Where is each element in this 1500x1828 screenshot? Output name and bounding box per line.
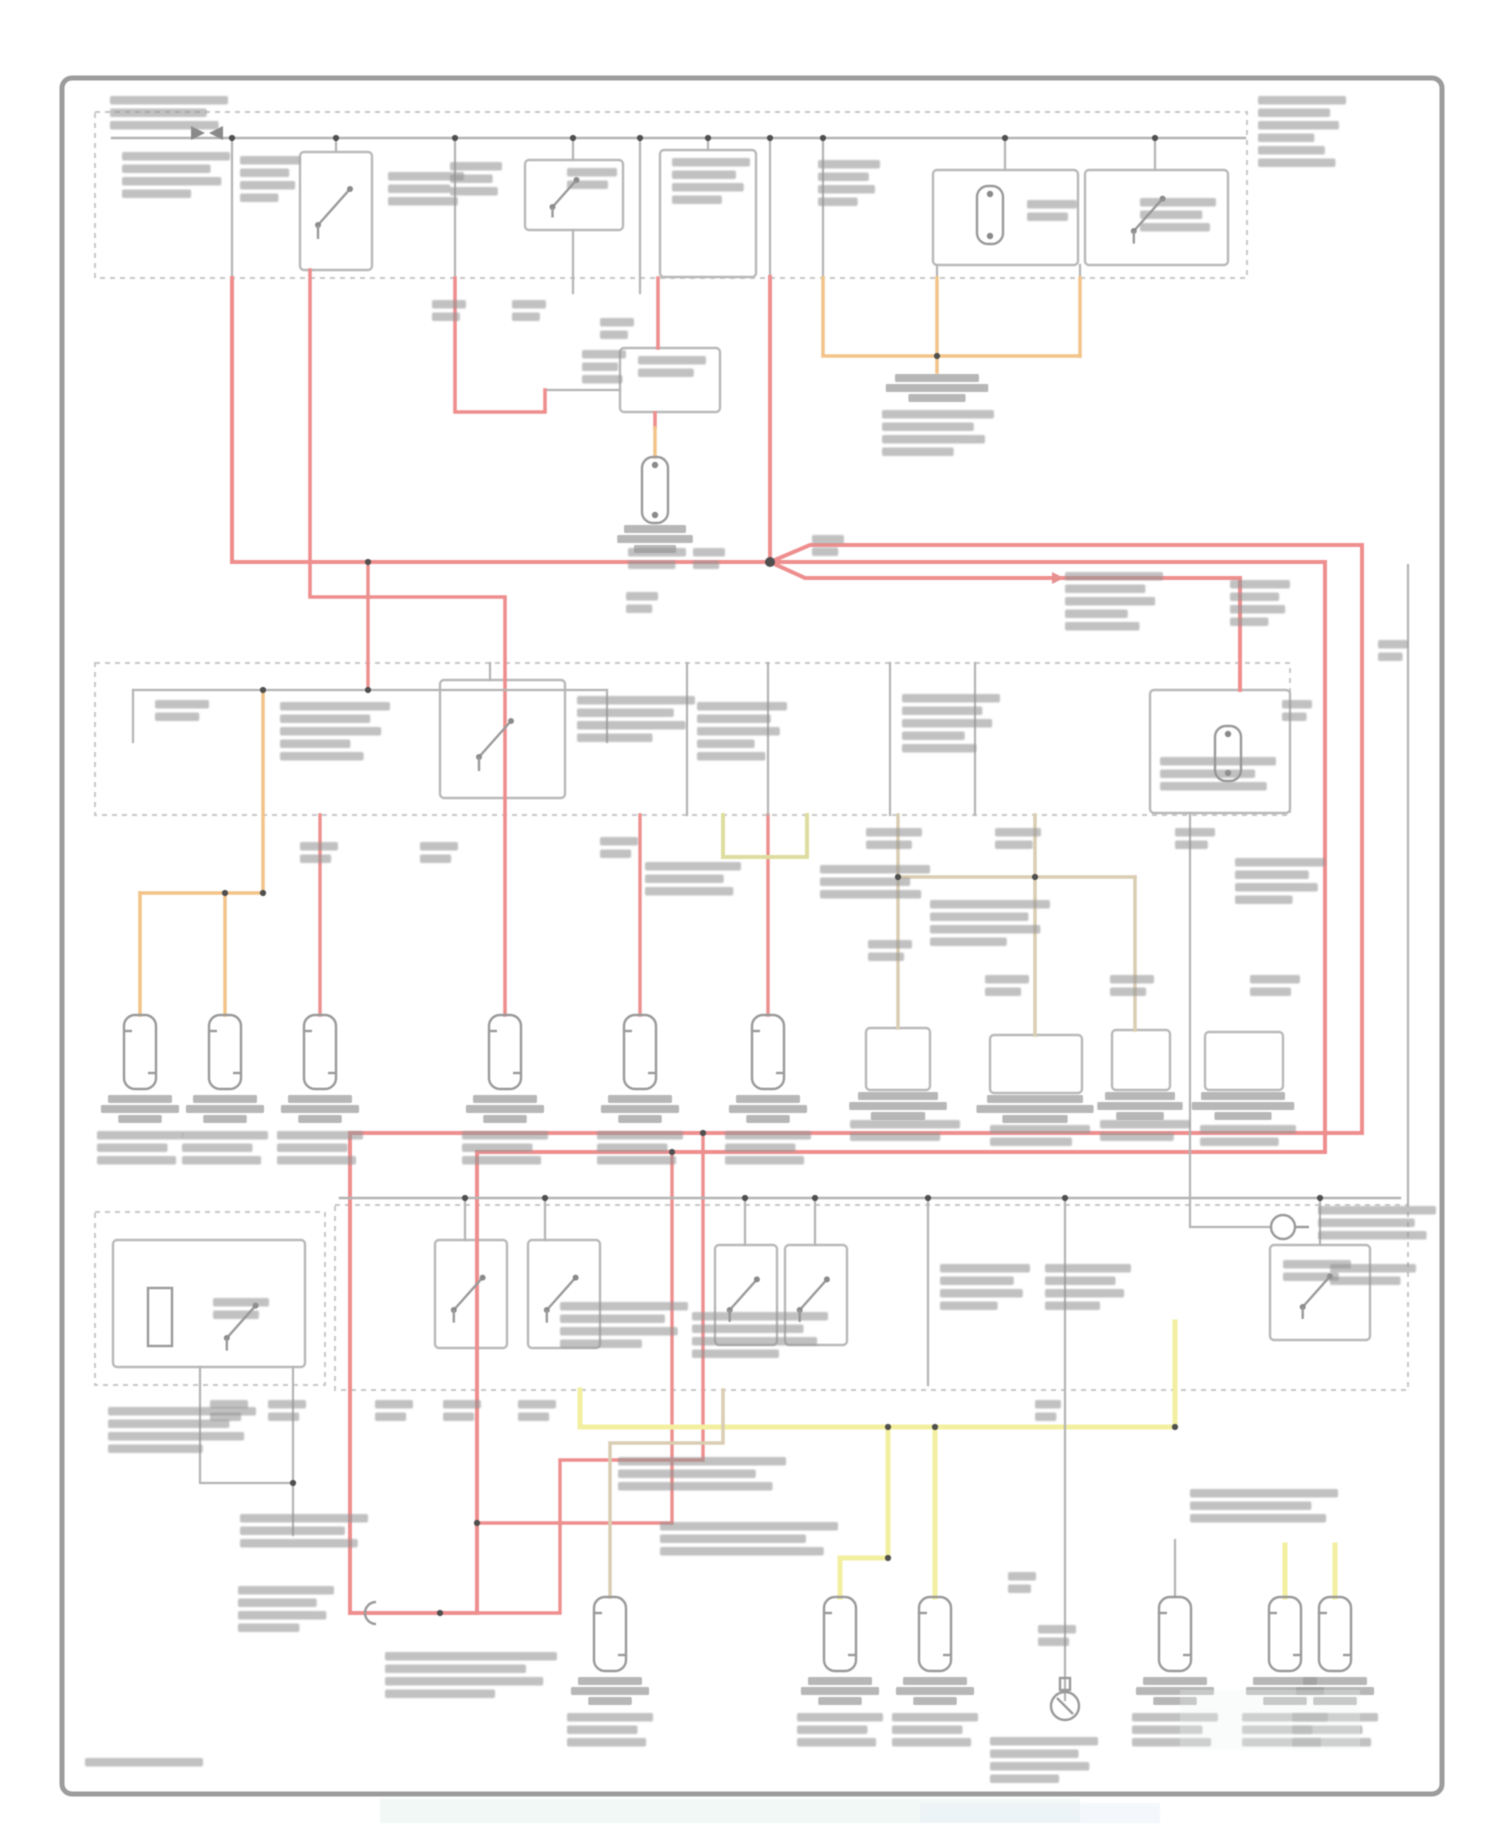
label-line (122, 152, 230, 161)
label-line (812, 535, 844, 544)
label-line (182, 1156, 261, 1165)
splice-dot (925, 1195, 931, 1201)
ground-stack-bar (1214, 1112, 1271, 1120)
label-line (280, 752, 364, 761)
main-splice-dot (765, 557, 775, 567)
label-line (1100, 1120, 1190, 1129)
splice-dot (462, 1195, 468, 1201)
splice-dot (1172, 1424, 1178, 1430)
label-line (122, 165, 211, 174)
label-line (1318, 1206, 1436, 1215)
switch-contact (347, 186, 353, 192)
label-line (97, 1156, 176, 1165)
label-line (280, 702, 390, 711)
label-line (866, 828, 922, 837)
label-line (385, 1665, 526, 1674)
label-line (902, 744, 976, 753)
switch-contact (824, 1276, 830, 1282)
label-line (638, 356, 706, 365)
splice-dot (222, 890, 228, 896)
label-line (820, 890, 921, 899)
label-line (420, 855, 451, 864)
label-line (902, 719, 992, 728)
label-line (1038, 1625, 1076, 1634)
label-line (420, 842, 458, 851)
label-line (268, 1400, 306, 1409)
label-line (868, 953, 904, 962)
label-line (1282, 700, 1312, 709)
label-line (797, 1713, 883, 1722)
label-line (1258, 109, 1330, 118)
label-line (97, 1131, 183, 1140)
label-line (567, 168, 617, 177)
label-line (990, 1762, 1089, 1771)
fuse-terminal (652, 462, 658, 468)
label-line (985, 988, 1021, 997)
label-line (638, 369, 694, 378)
lamp-base-bar (746, 1115, 790, 1123)
label-line (582, 375, 622, 384)
label-line (820, 865, 930, 874)
label-line (388, 197, 458, 206)
ground-stack-bar (886, 384, 988, 392)
label-line (577, 709, 674, 718)
label-line (450, 162, 502, 171)
label-line (618, 1482, 773, 1491)
label-line (385, 1677, 543, 1686)
label-line (385, 1652, 557, 1661)
label-line (672, 196, 722, 205)
lamp-base-bar (288, 1095, 352, 1103)
label-line (1282, 713, 1307, 722)
label-line (892, 1726, 963, 1735)
label-line (866, 841, 912, 850)
label-line (277, 1131, 363, 1140)
label-line (628, 561, 676, 570)
lamp-base-bar (801, 1687, 879, 1695)
label-line (110, 109, 207, 118)
scan-artifact (1180, 1690, 1360, 1750)
splice-dot (1152, 135, 1158, 141)
label-line (1035, 1413, 1056, 1422)
label-line (1235, 883, 1318, 892)
label-line (990, 1750, 1079, 1759)
label-line (443, 1413, 474, 1422)
label-line (1378, 640, 1408, 649)
label-line (990, 1737, 1098, 1746)
label-line (1318, 1219, 1415, 1228)
label-line (1258, 121, 1339, 130)
label-line (280, 727, 381, 736)
label-line (1235, 871, 1309, 880)
lamp-base-bar (483, 1115, 527, 1123)
label-line (1110, 988, 1146, 997)
label-line (1140, 198, 1216, 207)
splice-dot (669, 1149, 675, 1155)
label-line (110, 121, 219, 130)
label-line (210, 1413, 241, 1422)
label-line (618, 1457, 786, 1466)
label-line (902, 707, 982, 716)
label-line (1045, 1277, 1116, 1286)
label-line (990, 1138, 1072, 1147)
label-line (600, 331, 628, 340)
label-line (240, 194, 278, 203)
label-line (182, 1131, 268, 1140)
label-line (902, 694, 1000, 703)
splice-dot (333, 135, 339, 141)
ground-stack-bar (895, 374, 979, 382)
label-line (1140, 223, 1210, 232)
label-line (645, 875, 724, 884)
label-line (600, 850, 631, 859)
splice-dot (570, 135, 576, 141)
label-line (512, 300, 546, 309)
fuse-terminal (987, 191, 993, 197)
label-line (155, 700, 209, 709)
label-line (672, 183, 744, 192)
label-line (443, 1400, 481, 1409)
ground-stack-bar (908, 394, 965, 402)
splice-dot (542, 1195, 548, 1201)
label-line (110, 96, 228, 105)
label-line (240, 156, 300, 165)
fuse-terminal (1225, 731, 1231, 737)
label-line (660, 1547, 824, 1556)
label-line (995, 828, 1041, 837)
label-line (238, 1611, 326, 1620)
label-line (850, 1133, 940, 1142)
label-line (560, 1302, 688, 1311)
label-line (626, 592, 658, 601)
splice-dot (932, 1424, 938, 1430)
label-line (240, 1527, 345, 1536)
splice-dot (637, 135, 643, 141)
label-line (155, 713, 199, 722)
label-line (940, 1289, 1023, 1298)
label-line (182, 1144, 253, 1153)
label-line (300, 855, 331, 864)
label-line (693, 561, 719, 570)
label-line (618, 1470, 756, 1479)
switch-contact (573, 1275, 579, 1281)
switch-contact (754, 1276, 760, 1282)
splice-dot (812, 1195, 818, 1201)
lamp-base-bar (618, 1115, 662, 1123)
label-line (1378, 653, 1403, 662)
label-line (268, 1413, 299, 1422)
label-line (1065, 572, 1163, 581)
label-line (930, 900, 1050, 909)
label-line (300, 842, 338, 851)
ground-stack-bar (617, 535, 693, 543)
splice-dot (229, 135, 235, 141)
label-line (797, 1726, 868, 1735)
label-line (597, 1131, 683, 1140)
label-line (597, 1156, 676, 1165)
lamp-base-bar (473, 1095, 537, 1103)
label-line (432, 300, 466, 309)
label-line (1250, 988, 1291, 997)
splice-dot (365, 559, 371, 565)
label-line (122, 190, 191, 199)
label-line (108, 1432, 244, 1441)
label-line (1045, 1264, 1131, 1273)
ground-stack-bar (871, 1112, 925, 1120)
ground-stack-bar (1097, 1102, 1182, 1110)
splice-dot (437, 1610, 443, 1616)
label-line (518, 1413, 549, 1422)
label-line (210, 1400, 248, 1409)
label-line (892, 1713, 978, 1722)
label-line (375, 1400, 413, 1409)
label-line (375, 1413, 406, 1422)
label-line (1283, 1273, 1339, 1282)
lamp-base-bar (578, 1677, 642, 1685)
lamp-base-bar (736, 1095, 800, 1103)
label-line (582, 350, 626, 359)
label-line (660, 1535, 806, 1544)
label-line (1200, 1125, 1296, 1134)
label-line (240, 1539, 358, 1548)
lamp-base-bar (571, 1687, 649, 1695)
label-line (930, 925, 1040, 934)
label-line (1065, 585, 1145, 594)
label-line (108, 1445, 203, 1454)
label-line (725, 1131, 811, 1140)
label-line (645, 887, 733, 896)
wiring-diagram-canvas (0, 0, 1500, 1828)
ground-stack-bar (624, 525, 686, 533)
label-line (1160, 782, 1267, 791)
splice-dot (767, 135, 773, 141)
label-line (432, 313, 460, 322)
label-line (1258, 134, 1314, 143)
label-line (567, 1713, 653, 1722)
splice-dot (365, 687, 371, 693)
label-line (995, 841, 1033, 850)
ground-stack-bar (1201, 1092, 1285, 1100)
label-line (85, 1758, 203, 1767)
switch-contact (480, 1275, 486, 1281)
lamp-base-bar (298, 1115, 342, 1123)
label-line (238, 1624, 299, 1633)
label-line (122, 177, 221, 186)
label-line (697, 727, 780, 736)
label-line (1008, 1585, 1031, 1594)
label-line (582, 363, 618, 372)
label-line (1330, 1277, 1401, 1286)
label-line (1190, 1502, 1311, 1511)
label-line (692, 1350, 779, 1359)
label-line (818, 185, 875, 194)
lamp-base-bar (193, 1095, 257, 1103)
label-line (600, 837, 638, 846)
label-line (882, 448, 954, 457)
splice-dot (1032, 874, 1038, 880)
label-line (280, 740, 350, 749)
label-line (450, 175, 493, 184)
label-line (725, 1144, 796, 1153)
ground-stack-bar (1002, 1115, 1067, 1123)
label-line (940, 1277, 1014, 1286)
splice-dot (474, 1520, 480, 1526)
lamp-base-bar (903, 1677, 967, 1685)
lamp-base-bar (118, 1115, 162, 1123)
label-line (930, 938, 1007, 947)
label-line (1140, 211, 1202, 220)
label-line (1230, 605, 1285, 614)
label-line (240, 169, 289, 178)
label-line (1100, 1133, 1174, 1142)
ground-stack-bar (976, 1105, 1093, 1113)
lamp-base-bar (588, 1697, 632, 1705)
label-line (940, 1264, 1030, 1273)
lamp-base-bar (203, 1115, 247, 1123)
label-line (1160, 770, 1255, 779)
label-line (725, 1156, 804, 1165)
label-line (1175, 828, 1215, 837)
label-line (660, 1522, 838, 1531)
label-line (940, 1302, 998, 1311)
lamp-base-bar (108, 1095, 172, 1103)
label-line (1045, 1289, 1124, 1298)
scan-artifact (920, 1803, 1160, 1823)
ground-stack-bar (1192, 1102, 1294, 1110)
label-line (450, 187, 498, 196)
label-line (697, 715, 771, 724)
label-line (628, 548, 686, 557)
ground-stack-bar (858, 1092, 938, 1100)
scanned-wiring-diagram-page (0, 0, 1500, 1828)
fuse-terminal (987, 233, 993, 239)
label-line (1065, 622, 1139, 631)
label-line (990, 1125, 1090, 1134)
label-line (930, 913, 1028, 922)
label-line (868, 940, 912, 949)
label-line (1160, 757, 1276, 766)
label-line (280, 715, 370, 724)
label-line (1250, 975, 1300, 984)
label-line (1258, 96, 1346, 105)
lamp-base-bar (913, 1697, 957, 1705)
splice-dot (705, 135, 711, 141)
label-line (1008, 1572, 1036, 1581)
label-line (567, 1738, 646, 1747)
label-line (692, 1325, 804, 1334)
label-line (892, 1738, 971, 1747)
label-line (645, 862, 741, 871)
label-line (213, 1311, 259, 1320)
label-line (1045, 1302, 1100, 1311)
splice-dot (885, 1555, 891, 1561)
label-line (1230, 580, 1290, 589)
splice-dot (1062, 1195, 1068, 1201)
label-line (797, 1738, 876, 1747)
splice-dot (934, 353, 940, 359)
label-line (238, 1599, 317, 1608)
label-line (882, 435, 985, 444)
splice-dot (1002, 135, 1008, 141)
label-line (882, 423, 974, 432)
label-line (277, 1144, 348, 1153)
label-line (1200, 1138, 1279, 1147)
label-line (672, 171, 736, 180)
lamp-base-bar (1143, 1677, 1207, 1685)
label-line (560, 1340, 642, 1349)
label-line (812, 548, 838, 557)
label-line (385, 1690, 495, 1699)
ground-stack-bar (849, 1102, 947, 1110)
label-line (692, 1337, 817, 1346)
label-line (672, 158, 750, 167)
label-line (577, 734, 653, 743)
lamp-base-bar (818, 1697, 862, 1705)
label-line (985, 975, 1029, 984)
splice-dot (700, 1130, 706, 1136)
label-line (1235, 858, 1325, 867)
label-line (213, 1298, 269, 1307)
label-line (277, 1156, 356, 1165)
label-line (1235, 896, 1293, 905)
splice-dot (742, 1195, 748, 1201)
lamp-base-bar (186, 1105, 264, 1113)
lamp-base-bar (281, 1105, 359, 1113)
label-line (1258, 146, 1325, 155)
ground-stack-bar (1116, 1112, 1164, 1120)
label-line (388, 185, 450, 194)
label-line (1283, 1260, 1351, 1269)
splice-dot (452, 135, 458, 141)
lamp-base-bar (466, 1105, 544, 1113)
label-line (597, 1144, 668, 1153)
label-line (1230, 593, 1279, 602)
splice-dot (820, 135, 826, 141)
fuse-terminal (652, 512, 658, 518)
lamp-base-bar (896, 1687, 974, 1695)
lamp-base-bar (1303, 1677, 1367, 1685)
label-line (560, 1315, 665, 1324)
lamp-base-bar (101, 1105, 179, 1113)
ground-stack-bar (1105, 1092, 1175, 1100)
splice-dot (1317, 1195, 1323, 1201)
label-line (1035, 1400, 1061, 1409)
label-line (577, 696, 695, 705)
label-line (1175, 841, 1208, 850)
label-line (697, 740, 755, 749)
label-line (818, 173, 869, 182)
ground-stack-bar (987, 1095, 1083, 1103)
label-line (1027, 213, 1068, 222)
label-line (567, 181, 608, 190)
label-line (818, 198, 858, 207)
label-line (518, 1400, 556, 1409)
label-line (462, 1144, 533, 1153)
label-line (567, 1726, 638, 1735)
label-line (693, 548, 725, 557)
label-line (1230, 618, 1268, 627)
label-line (1110, 975, 1154, 984)
lamp-base-bar (808, 1677, 872, 1685)
label-line (902, 732, 965, 741)
lamp-base-bar (601, 1105, 679, 1113)
splice-dot (260, 890, 266, 896)
label-line (600, 318, 634, 327)
label-line (1258, 159, 1335, 168)
label-line (240, 181, 295, 190)
label-text-block (85, 1758, 203, 1767)
splice-dot (895, 874, 901, 880)
